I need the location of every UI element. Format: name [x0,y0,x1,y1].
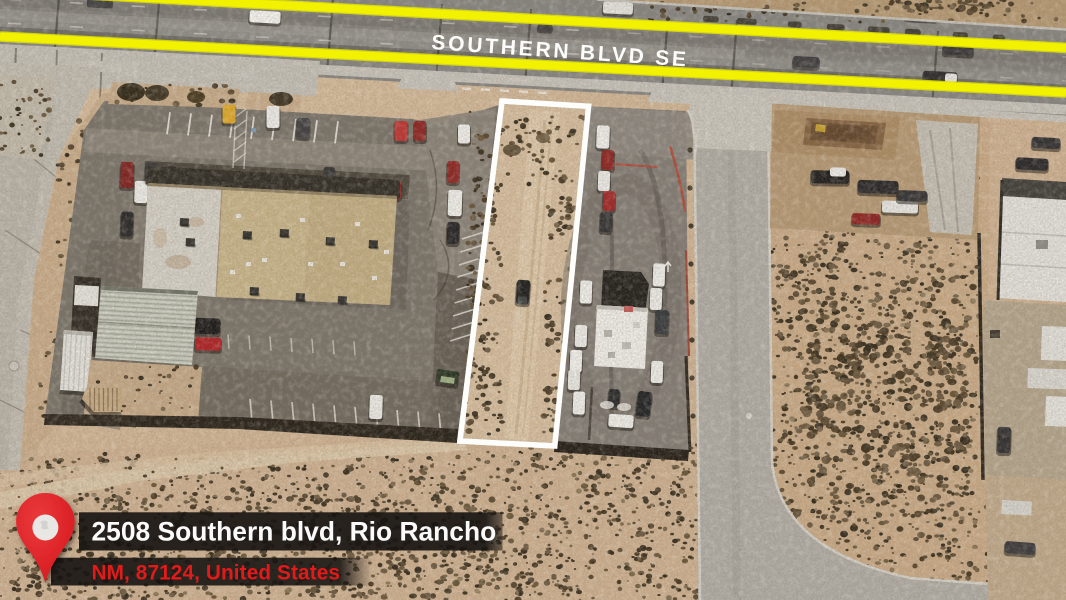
svg-text:NM, 87124, United States: NM, 87124, United States [92,562,341,585]
svg-text:2508 Southern blvd, Rio Rancho: 2508 Southern blvd, Rio Rancho [92,517,497,547]
